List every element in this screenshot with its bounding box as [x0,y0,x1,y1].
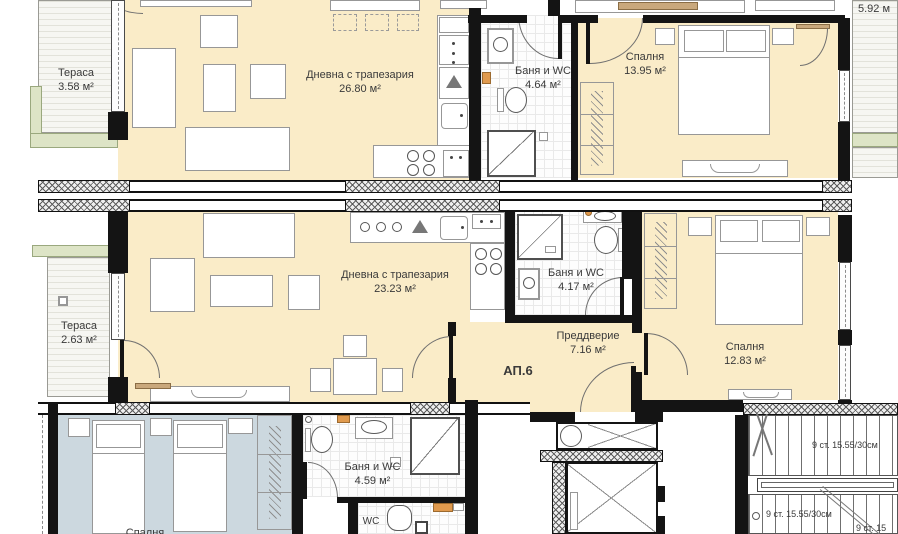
dining-chair [343,335,367,357]
boiler-icon [433,503,453,512]
stove-burner-icon [490,248,502,260]
cabinet-curve [191,390,247,398]
room-name: Преддверие [543,329,633,343]
door-leaf [303,462,307,499]
stair-rail-inner [761,482,894,488]
room-area: 4.64 м² [498,78,588,92]
wardrobe-shelf [258,492,291,493]
stove-burner-icon [423,150,435,162]
wc-cabinet [415,521,428,534]
wall [469,8,481,180]
stair-label-text: 9 ст. 15.55/30см [766,509,858,520]
dresser [682,160,788,177]
wardrobe [580,82,614,175]
room-area: 26.80 м² [295,82,425,96]
window [839,70,850,122]
gas-burner-icon [392,222,402,232]
room-label-bedroom-bottom: Спалня [100,526,190,534]
chair-dashed [397,14,419,31]
dining-table [333,358,377,395]
side-table [288,275,320,310]
wardrobe-shelf [581,145,613,146]
room-name: Спалня [100,526,190,534]
wardrobe-shelf [581,114,613,115]
elevator-door-panel [570,492,578,530]
room-name: Баня и WC [320,460,425,474]
pillow [96,424,141,448]
dimension-value: 5.92 м [858,2,898,16]
window-mullion [118,3,119,109]
room-name: Баня и WC [498,64,588,78]
window-mullion [844,73,845,119]
room-label-hallway: Преддверие 7.16 м² [543,329,633,357]
insulation-hatch [410,402,450,415]
fridge-dot [450,156,453,159]
cabinet-dot [452,52,455,55]
wall [465,400,478,534]
room-name: Спалня [602,50,688,64]
dresser [728,389,792,400]
nightstand [688,217,712,236]
insulation-hatch [822,180,852,193]
washing-machine-drum-icon [493,37,508,52]
room-label-bath-bottom: Баня и WC 4.59 м² [320,460,425,488]
bathroom-sink [361,420,387,434]
stove-burner-icon [407,150,419,162]
wall [108,212,128,273]
drain-box-icon [58,296,68,306]
room-label-terrace-mid: Тераса 2.63 м² [50,319,108,347]
stair-label: 9 ст. 15.55/30см [766,509,858,520]
sofa [185,127,290,171]
stove-burner-icon [423,164,435,176]
shower-cabin [487,130,536,177]
room-label-wc: WC [356,515,386,529]
wall [48,403,58,534]
shower-cabin [517,214,563,260]
window [111,273,125,340]
nightstand [68,418,90,437]
furniture-fragment [755,0,835,11]
wardrobe [257,415,292,530]
room-label-bath-mid: Баня и WC 4.17 м² [534,266,618,294]
gas-burner-icon [376,222,386,232]
coffee-table [250,64,286,99]
room-area: 23.23 м² [333,282,457,296]
room-name: WC [356,515,386,529]
door-leaf [120,340,124,380]
window [839,262,851,330]
terrace-green-edge [30,133,118,148]
dining-chair [382,368,403,392]
toilet-bowl [311,426,333,453]
room-area: 4.17 м² [534,280,618,294]
pillow [762,220,800,242]
furniture-fragment [140,0,252,7]
wall [656,486,665,502]
door-leaf [449,336,453,378]
wall [530,412,575,422]
blanket-line [716,253,802,254]
nightstand [150,418,172,436]
wall [108,377,128,402]
wall [656,516,665,534]
stair-label: 9 ст. 15 [856,523,898,534]
room-name: Дневна с трапезария [295,68,425,82]
room-area: 4.59 м² [320,474,425,488]
door-leaf [586,18,590,64]
insulation-hatch [540,450,663,462]
table-fragment [330,0,420,11]
room-name: Тераса [50,319,108,333]
wall [560,15,598,23]
dresser-curve [710,164,760,173]
wall [838,330,852,345]
room-label-bath-top: Баня и WC 4.64 м² [498,64,588,92]
wall [735,415,748,534]
armchair [203,64,236,112]
window [111,0,125,112]
chair-dashed [365,14,389,31]
stove-burner-icon [475,248,487,260]
stove-burner-icon [475,263,487,275]
pillow [720,220,758,242]
dimension-label: 5.92 м [858,2,898,16]
pillow [726,30,766,52]
slab-band [38,402,530,415]
door-leaf [620,277,624,315]
window-mullion [845,348,846,397]
blanket-line [174,453,226,454]
boiler-icon [482,72,491,84]
insulation-hatch [822,199,852,212]
sink-tap-icon [461,226,464,229]
insulation-hatch [38,180,130,193]
room-terrace-right-lower [852,147,898,178]
wardrobe-shelf [645,246,676,247]
wc-shelf [453,503,464,511]
room-area: 13.95 м² [602,64,688,78]
drain-box-icon [539,132,548,141]
shower-diagonal [489,132,534,175]
nightstand [655,28,675,45]
room-name: Баня и WC [534,266,618,280]
wall [838,215,852,262]
stair-label: 9 ст. 15.55/30см [812,440,898,451]
cabinet-dot [452,42,455,45]
nightstand [228,418,253,434]
wall [643,15,845,23]
wall [632,212,642,333]
blanket-line [93,453,144,454]
nightstand [806,217,830,236]
fridge-dot [490,220,493,223]
sink-symbol-icon [446,75,462,88]
cabinet-dot [452,61,455,64]
room-terrace-right [852,0,898,133]
blanket-line [679,57,769,58]
window-mullion [845,265,846,327]
gas-burner-icon [360,222,370,232]
insulation-hatch [552,462,566,534]
vent-fan-icon [560,425,582,447]
wall [838,18,850,70]
wall [622,212,632,279]
railing-dashed [42,415,44,534]
room-area: 12.83 м² [700,354,790,368]
bathroom-sink [594,211,616,221]
room-label-terrace-top: Тераса 3.58 м² [40,66,112,94]
wall [571,15,578,180]
wc-sink [387,505,412,531]
wall [632,400,743,412]
pillow [177,424,223,448]
towel-rail [545,246,556,253]
vent-shaft-cross [588,424,656,448]
kitchen-cabinet [439,17,469,33]
room-label-living-mid: Дневна с трапезария 23.23 м² [333,268,457,296]
door-hinge-icon [305,416,312,423]
wall [548,0,560,16]
room-name: Тераса [40,66,112,80]
sink-symbol-icon [412,220,428,233]
wall [838,122,850,180]
wall [505,315,632,323]
armchair [150,258,195,312]
room-area: 7.16 м² [543,343,633,357]
pillow [684,30,724,52]
terrace-mid-green-edge [32,245,110,257]
stair-label-text: 9 ст. 15.55/30см [812,440,898,451]
room-label-bedroom-top: Спалня 13.95 м² [602,50,688,78]
insulation-hatch [38,199,130,212]
terrace-right-slab [852,133,898,147]
wall [448,322,456,336]
wall [505,212,515,322]
chair-dashed [333,14,357,31]
fridge-dot [480,220,483,223]
apartment-number-label: АП.6 [492,364,544,378]
wardrobe [644,213,677,309]
insulation-hatch [345,199,500,212]
sofa [132,48,176,128]
dresser-curve [743,392,779,398]
room-label-bedroom-mid: Спалня 12.83 м² [700,340,790,368]
door-threshold [135,383,171,389]
toilet-bowl [594,226,618,254]
coffee-table [210,275,273,307]
tv-cabinet [150,386,290,402]
stair-start-marker [752,512,760,520]
window-mullion [118,276,119,337]
fridge [443,150,469,177]
wall [108,112,128,140]
room-name: Дневна с трапезария [333,268,457,282]
insulation-hatch [345,180,500,193]
room-label-living-top: Дневна с трапезария 26.80 м² [295,68,425,96]
room-area: 2.63 м² [50,333,108,347]
floor-plan: Тераса 3.58 м² Дневна с трапезария 26.80… [0,0,898,534]
kitchen-sink [441,103,468,129]
boiler-icon [337,415,350,423]
wall [635,412,663,422]
door-leaf [644,333,648,375]
sofa [203,213,295,258]
wall [292,415,303,534]
room-name: Спалня [700,340,790,354]
fridge [472,214,501,229]
insulation-hatch [115,402,150,415]
stair-label-text: 9 ст. 15 [856,523,898,534]
armchair [200,15,238,48]
stove-burner-icon [490,263,502,275]
dining-chair [310,368,331,392]
nightstand [772,28,794,45]
wardrobe-shelf [645,278,676,279]
apartment-number: АП.6 [492,364,544,378]
sink-tap-icon [460,114,463,117]
room-area: 3.58 м² [40,80,112,94]
wardrobe-shelf [258,454,291,455]
radiator [618,2,698,10]
stove-burner-icon [407,164,419,176]
elevator-shaft [566,462,658,534]
fridge-dot [459,156,462,159]
window [839,345,851,400]
